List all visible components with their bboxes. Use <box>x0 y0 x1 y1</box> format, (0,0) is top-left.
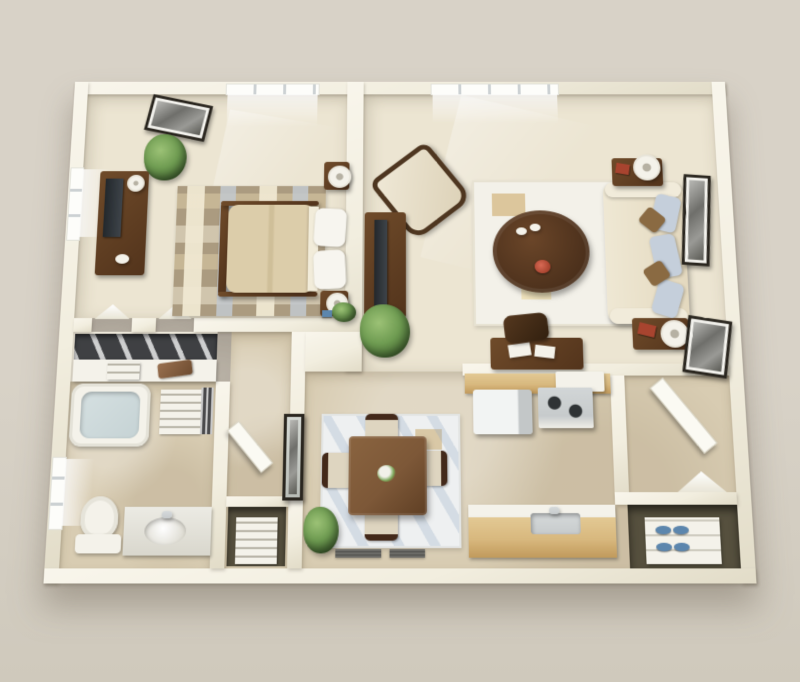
kitchen-faucet <box>549 507 560 514</box>
coffee-table-flowers <box>534 260 550 273</box>
wall-entry-closet-top <box>615 492 737 505</box>
living-wall-art-low <box>682 315 732 379</box>
closet-shelf <box>72 360 216 382</box>
coffee-table-cup-1 <box>516 227 527 235</box>
hall-drawer-tower <box>235 517 278 564</box>
end-table-top-book <box>615 163 630 175</box>
dining-floor-vent-2 <box>390 549 425 558</box>
bed-pillow-1 <box>313 208 347 247</box>
linen-magazines <box>200 388 214 435</box>
wall-hall-closet-top <box>226 496 288 506</box>
nightstand-blue-decor <box>322 310 332 317</box>
living-plant <box>360 304 410 357</box>
stove <box>538 388 594 429</box>
bedroom-corner-plant <box>332 302 356 322</box>
desk-chair <box>503 312 550 344</box>
bed-pillow-2 <box>313 250 346 290</box>
bedroom-tv <box>103 179 124 237</box>
living-wall-art-low-mat <box>686 318 729 375</box>
living-wall-art-tall-mat <box>685 177 708 263</box>
living-wall-art-tall <box>682 174 711 266</box>
shoe-2a <box>656 543 672 552</box>
hall-mirror <box>282 414 304 501</box>
desk-papers-2 <box>534 344 555 358</box>
apartment-plan <box>43 82 756 584</box>
bedroom-top-window-light <box>226 94 317 127</box>
bedroom-wall-art-mat <box>147 97 209 138</box>
outer-wall-bottom <box>43 568 756 583</box>
coffee-table-cup-2 <box>530 224 541 232</box>
shoe-1b <box>673 526 689 534</box>
dining-centerpiece <box>377 465 396 482</box>
wall-bedroom-bottom-1 <box>73 318 92 332</box>
shoe-2b <box>674 543 690 552</box>
closet-interior <box>74 334 218 360</box>
nightstand-top-lamp <box>328 166 352 188</box>
dining-plant <box>303 507 339 554</box>
outer-wall-top <box>74 82 725 95</box>
wall-bedroom-bottom-2 <box>131 318 156 332</box>
shoe-shelf <box>645 517 722 564</box>
linen-shelf <box>159 390 201 435</box>
toilet-tank <box>75 534 122 553</box>
hall-mirror-glass <box>285 417 301 497</box>
bathtub-water <box>79 392 140 439</box>
end-table-top-lamp <box>633 155 661 181</box>
floor-plan-scene <box>0 0 800 682</box>
refrigerator <box>473 390 533 435</box>
closet-basket <box>107 363 140 380</box>
toilet-bowl <box>80 496 120 538</box>
living-top-window-light <box>433 94 558 123</box>
kitchen-sink <box>530 513 580 534</box>
dining-floor-vent-1 <box>335 549 381 558</box>
shoe-1a <box>655 526 671 534</box>
bed-duvet <box>226 205 315 293</box>
wall-hall-closet <box>287 496 303 568</box>
wall-corner-block <box>305 332 362 372</box>
living-tv <box>374 220 387 308</box>
vanity-faucet <box>162 511 173 518</box>
